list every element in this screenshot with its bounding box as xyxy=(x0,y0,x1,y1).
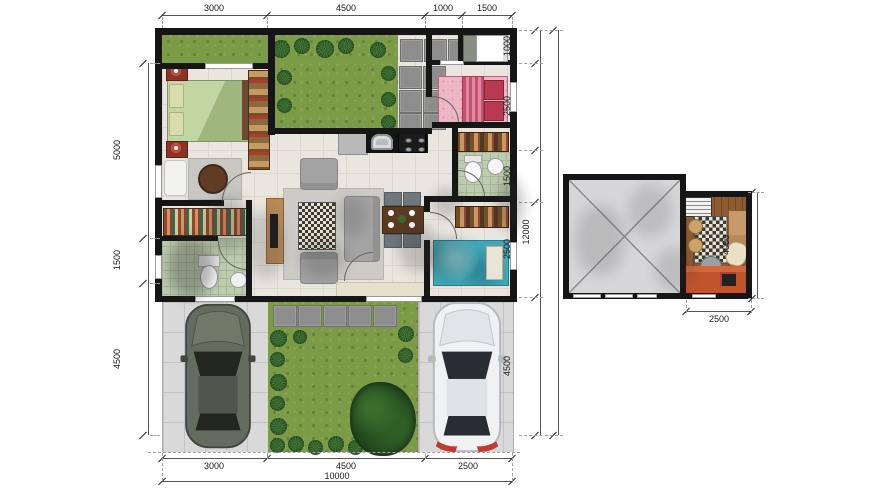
plate xyxy=(409,210,415,216)
extension-line xyxy=(150,283,160,284)
window xyxy=(155,255,162,279)
palm-plant xyxy=(370,42,386,58)
paver-stone xyxy=(373,305,397,327)
extension-line xyxy=(425,453,426,459)
palm-plant xyxy=(277,98,292,113)
extension-line xyxy=(751,300,752,313)
dim-label: 3000 xyxy=(192,461,236,471)
dining-chair xyxy=(403,192,421,206)
palm-plant xyxy=(338,38,354,54)
extension-line xyxy=(748,192,764,193)
dim-tick xyxy=(139,432,147,440)
window xyxy=(637,294,657,298)
dim-label-total: 12000 xyxy=(521,210,531,254)
paver-stone xyxy=(399,90,422,113)
dim-label: 1000 xyxy=(421,3,465,13)
courtyard-garden xyxy=(275,63,398,130)
extension-line xyxy=(519,63,543,64)
upper-wall-room-right xyxy=(746,191,752,299)
palm-plant xyxy=(398,326,414,342)
watermark-blob xyxy=(655,248,695,292)
refrigerator xyxy=(338,133,368,155)
armchair xyxy=(300,158,338,190)
pouf xyxy=(688,219,703,234)
dining-chair xyxy=(384,192,402,206)
palm-plant xyxy=(288,436,304,452)
watermark-blob xyxy=(168,236,214,298)
extension-line xyxy=(512,453,513,481)
paver-stone xyxy=(399,66,422,89)
pouf xyxy=(688,238,703,253)
wall-bedroom2-bottom xyxy=(432,122,510,128)
wardrobe-2 xyxy=(455,132,509,152)
upper-wall-room-top xyxy=(680,191,752,197)
window xyxy=(155,165,162,198)
extension-line xyxy=(686,300,687,313)
palm-plant xyxy=(270,418,287,435)
dim-line-bottom-total xyxy=(162,481,512,482)
dim-label: 2500 xyxy=(502,227,512,271)
palm-plant xyxy=(270,438,285,453)
pillow xyxy=(169,112,184,136)
palm-plant xyxy=(270,396,285,411)
dim-tick xyxy=(139,235,147,243)
extension-line xyxy=(519,435,563,436)
dim-label: 4500 xyxy=(324,3,368,13)
palm-plant xyxy=(328,436,344,452)
watermark-blob xyxy=(428,238,472,278)
upper-wall-left xyxy=(563,174,569,299)
upper-wall-top xyxy=(563,174,686,180)
kitchen-sink xyxy=(371,134,393,150)
pillow xyxy=(484,101,504,121)
upper-dim-line-bottom xyxy=(686,311,751,312)
extension-line xyxy=(148,452,520,453)
upper-dim-line-right xyxy=(757,192,758,298)
dim-label: 3000 xyxy=(192,3,236,13)
dim-label: 4500 xyxy=(502,344,512,388)
extension-line xyxy=(162,453,163,481)
window xyxy=(605,294,633,298)
watermark-blob xyxy=(575,205,625,275)
palm-plant xyxy=(277,70,292,85)
table-lamp xyxy=(171,143,181,153)
extension-line xyxy=(519,297,543,298)
dim-line-right-total xyxy=(558,30,559,435)
wall-kitchen-back xyxy=(268,128,432,134)
dim-label: 2500 xyxy=(502,84,512,128)
palm-plant xyxy=(381,92,396,107)
palm-plant xyxy=(270,330,287,347)
dim-label: 4500 xyxy=(324,461,368,471)
watermark-blob xyxy=(496,178,524,230)
wall-top xyxy=(155,28,517,35)
extension-line xyxy=(162,17,163,28)
master-wardrobe xyxy=(248,70,270,170)
garden-bush xyxy=(350,382,416,456)
watermark-blob xyxy=(628,185,672,237)
watermark-blob xyxy=(300,238,346,278)
stove xyxy=(398,133,426,153)
palm-plant xyxy=(381,66,396,81)
palm-plant xyxy=(398,348,413,363)
paver-stone xyxy=(298,305,322,327)
palm-plant xyxy=(294,38,310,54)
palm-plant xyxy=(270,374,287,391)
paver-stone xyxy=(323,305,347,327)
floor-plan-canvas: 3000 4500 1000 1500 5000 1500 4500 1000 … xyxy=(0,0,870,489)
paver-stone xyxy=(273,305,297,327)
centerpiece-plant xyxy=(398,215,406,223)
watermark-blob xyxy=(336,196,366,236)
dim-label: 2500 xyxy=(697,314,741,324)
extension-line xyxy=(748,298,764,299)
wall-bedroom2-left xyxy=(426,35,432,97)
window xyxy=(692,294,716,298)
paver-stone xyxy=(400,39,423,62)
dim-tick xyxy=(139,280,147,288)
tray-table xyxy=(720,272,736,286)
bathroom-sink xyxy=(230,272,247,288)
extension-line xyxy=(267,453,268,459)
bed-2-blanket xyxy=(462,76,484,124)
dim-label: 1000 xyxy=(502,24,512,68)
watermark-blob xyxy=(432,188,462,218)
plate xyxy=(388,210,394,216)
window xyxy=(205,63,253,69)
staircase xyxy=(684,197,712,217)
palm-plant xyxy=(270,352,285,367)
extension-line xyxy=(267,17,268,28)
plate xyxy=(388,222,394,228)
car-dark xyxy=(180,301,256,451)
pillow xyxy=(486,246,503,280)
extension-line xyxy=(150,435,160,436)
extension-line xyxy=(519,150,543,151)
pillow xyxy=(484,80,504,100)
paver-stone xyxy=(348,305,372,327)
palm-plant xyxy=(293,330,307,344)
palm-plant xyxy=(316,40,334,58)
pillow xyxy=(169,84,184,108)
orange-sofa xyxy=(686,266,746,293)
dim-label: 5000 xyxy=(112,128,122,172)
dim-label: 2500 xyxy=(446,461,490,471)
armchair xyxy=(164,160,187,196)
extension-line xyxy=(462,17,463,28)
extension-line xyxy=(150,238,160,239)
dim-label-total: 10000 xyxy=(315,471,359,481)
dim-line-bottom xyxy=(162,458,512,459)
dim-label: 1500 xyxy=(112,238,122,282)
watermark-blob xyxy=(248,210,284,280)
wall-bedroom3-left-a xyxy=(424,196,430,212)
dim-line-right xyxy=(540,30,541,435)
dim-tick xyxy=(139,60,147,68)
extension-line xyxy=(425,17,426,28)
dim-label: 4000 xyxy=(721,223,731,267)
extension-line xyxy=(150,63,160,64)
wall-courtyard-left xyxy=(268,35,275,135)
car-light xyxy=(428,299,506,455)
dim-label: 4500 xyxy=(112,337,122,381)
extension-line xyxy=(519,30,563,31)
watermark-blob xyxy=(206,196,250,252)
dim-line-left xyxy=(148,63,149,435)
extension-line xyxy=(512,17,513,28)
window xyxy=(573,294,601,298)
dim-label: 1500 xyxy=(465,3,509,13)
